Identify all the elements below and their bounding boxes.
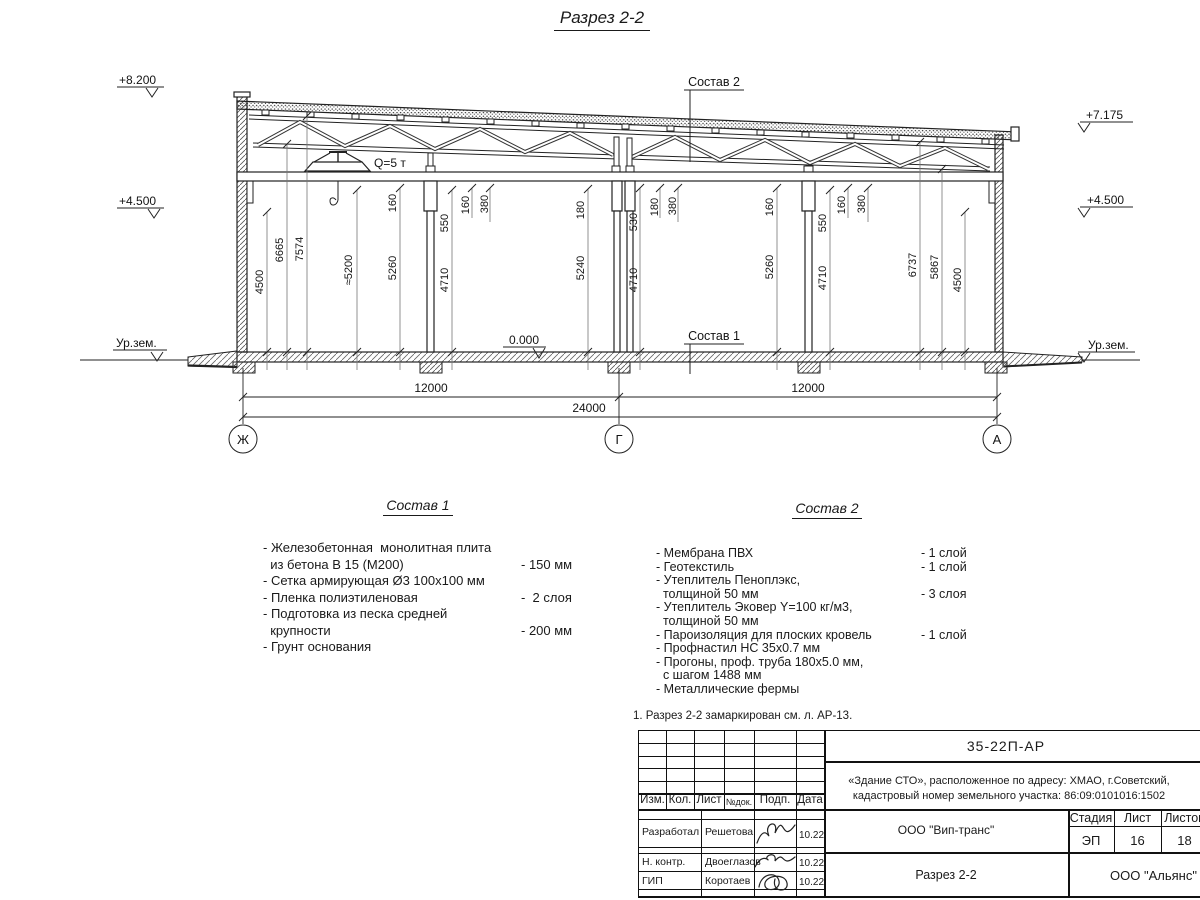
composition-1-title: Состав 1 — [263, 497, 573, 516]
floor-slab — [233, 352, 1007, 373]
tb-row1-role: Разработал — [642, 826, 699, 838]
crane-capacity-label: Q=5 т — [374, 156, 406, 170]
svg-text:≈5200: ≈5200 — [343, 255, 355, 286]
tb-sheet-value: 16 — [1114, 833, 1161, 848]
tb-row2-date: 10.22 — [799, 858, 824, 869]
tb-org: ООО "Вип-транс" — [824, 823, 1068, 837]
list-item: - Металлические фермы — [656, 683, 998, 697]
list-item: с шагом 1488 мм — [656, 669, 998, 683]
list-item: - Железобетонная монолитная плита — [263, 540, 573, 557]
svg-text:4500: 4500 — [254, 270, 266, 294]
vertical-dimension-labels: 4500 6665 7574 ≈5200 5260 160 550 4710 1… — [254, 194, 964, 294]
drawing-sheet: Разрез 2-2 — [0, 0, 1200, 900]
list-item: - Сетка армирующая Ø3 100х100 мм — [263, 573, 573, 590]
svg-text:180: 180 — [649, 198, 661, 216]
tb-project-line2: кадастровый номер земельного участка: 86… — [829, 790, 1189, 802]
elevation-marks-right: +7.175 +4.500 Ур.зем. — [1078, 108, 1135, 362]
tb-row3-role: ГИП — [642, 875, 663, 887]
svg-text:160: 160 — [460, 196, 472, 214]
composition-1-block: Состав 1 - Железобетонная монолитная пли… — [263, 497, 573, 656]
tb-stage-value: ЭП — [1068, 833, 1114, 848]
svg-text:4710: 4710 — [817, 266, 829, 290]
svg-text:5867: 5867 — [929, 255, 941, 279]
list-item: - Геотекстиль- 1 слой — [656, 561, 998, 575]
tb-row1-date: 10.22 — [799, 830, 824, 841]
composition-2-block: Состав 2 - Мембрана ПВХ- 1 слой - Геотек… — [656, 500, 998, 697]
axis-circle-right: А — [993, 432, 1002, 447]
axis-circle-left: Ж — [237, 432, 249, 447]
tb-col-data: Дата — [796, 794, 824, 806]
list-item: крупности- 200 мм — [263, 623, 573, 640]
tb-col-ndoc: №док. — [724, 797, 754, 807]
svg-text:5260: 5260 — [387, 256, 399, 280]
list-item: - Прогоны, проф. труба 180х5.0 мм, — [656, 656, 998, 670]
svg-text:6737: 6737 — [907, 253, 919, 277]
elevation-marks-left: +8.200 +4.500 Ур.зем. — [113, 73, 167, 361]
svg-text:4500: 4500 — [952, 268, 964, 292]
elevation-left-mid: +4.500 — [119, 194, 156, 208]
composition-2-items: - Мембрана ПВХ- 1 слой - Геотекстиль- 1 … — [656, 547, 998, 697]
composition-2-title: Состав 2 — [656, 500, 998, 519]
tb-project-line1: «Здание СТО», расположенное по адресу: Х… — [829, 775, 1189, 787]
list-item: - Утеплитель Пеноплэкс, — [656, 574, 998, 588]
leader-floor-label: Состав 1 — [688, 329, 740, 343]
building-section-svg: Q=5 т Состав 2 Состав 1 0.000 +8.200 +4.… — [0, 0, 1200, 478]
dim-span-right: 12000 — [791, 381, 825, 395]
list-item: - Грунт основания — [263, 639, 573, 656]
svg-text:6665: 6665 — [274, 238, 286, 262]
svg-text:180: 180 — [575, 201, 587, 219]
horizontal-dimensions: 12000 12000 24000 — [239, 368, 1001, 424]
dim-total: 24000 — [572, 401, 606, 415]
svg-text:160: 160 — [387, 194, 399, 212]
tb-row3-name: Коротаев — [705, 875, 750, 887]
tb-drawing-name: Разрез 2-2 — [824, 868, 1068, 882]
tb-row1-name: Решетова — [705, 826, 753, 838]
tb-company: ООО "Альянс" — [1068, 868, 1200, 883]
elevation-right-ground: Ур.зем. — [1088, 338, 1129, 352]
tb-sheets-value: 18 — [1161, 833, 1200, 848]
svg-text:550: 550 — [817, 214, 829, 232]
svg-text:380: 380 — [667, 197, 679, 215]
leader-roof-label: Состав 2 — [688, 75, 740, 89]
svg-text:160: 160 — [836, 196, 848, 214]
svg-text:530: 530 — [628, 213, 640, 231]
zero-level-label: 0.000 — [509, 333, 539, 347]
svg-text:4710: 4710 — [628, 268, 640, 292]
axis-circle-mid: Г — [615, 432, 622, 447]
svg-text:380: 380 — [856, 195, 868, 213]
title-block: Изм. Кол. Лист №док. Подп. Дата Разработ… — [638, 730, 1200, 898]
svg-text:5240: 5240 — [575, 256, 587, 280]
tb-sheet-label: Лист — [1114, 811, 1161, 825]
tb-col-kol: Кол. — [666, 794, 694, 806]
tb-row3-date: 10.22 — [799, 877, 824, 888]
list-item: толщиной 50 мм — [656, 615, 998, 629]
tb-row2-role: Н. контр. — [642, 856, 685, 868]
elevation-right-mid: +4.500 — [1087, 193, 1124, 207]
list-item: толщиной 50 мм- 3 слоя — [656, 588, 998, 602]
tb-col-podp: Подп. — [754, 794, 796, 806]
tb-stage-label: Стадия — [1068, 811, 1114, 825]
svg-text:380: 380 — [479, 195, 491, 213]
elevation-left-ground: Ур.зем. — [116, 336, 157, 350]
svg-text:5260: 5260 — [764, 255, 776, 279]
list-item: - Пленка полиэтиленовая- 2 слоя — [263, 590, 573, 607]
tb-doc-number: 35-22П-АР — [824, 738, 1188, 754]
svg-text:550: 550 — [439, 214, 451, 232]
sheet-note: 1. Разрез 2-2 замаркирован см. л. АР-13. — [633, 710, 852, 722]
tb-col-izm: Изм. — [639, 794, 666, 806]
list-item: - Утеплитель Эковер Y=100 кг/м3, — [656, 601, 998, 615]
list-item: из бетона В 15 (М200)- 150 мм — [263, 557, 573, 574]
composition-1-items: - Железобетонная монолитная плита из бет… — [263, 540, 573, 656]
list-item: - Подготовка из песка средней — [263, 606, 573, 623]
signature-scribble — [751, 849, 799, 895]
svg-text:7574: 7574 — [294, 237, 306, 261]
axis-markers: Ж Г А — [229, 425, 1011, 453]
tb-col-list: Лист — [694, 794, 724, 806]
list-item: - Профнастил НС 35х0.7 мм — [656, 642, 998, 656]
dim-span-left: 12000 — [414, 381, 448, 395]
signature-scribble — [755, 817, 797, 849]
elevation-left-top: +8.200 — [119, 73, 156, 87]
list-item: - Мембрана ПВХ- 1 слой — [656, 547, 998, 561]
elevation-right-top: +7.175 — [1086, 108, 1123, 122]
svg-text:4710: 4710 — [439, 268, 451, 292]
tb-sheets-label: Листов — [1161, 811, 1200, 825]
list-item: - Пароизоляция для плоских кровель- 1 сл… — [656, 629, 998, 643]
svg-text:160: 160 — [764, 198, 776, 216]
